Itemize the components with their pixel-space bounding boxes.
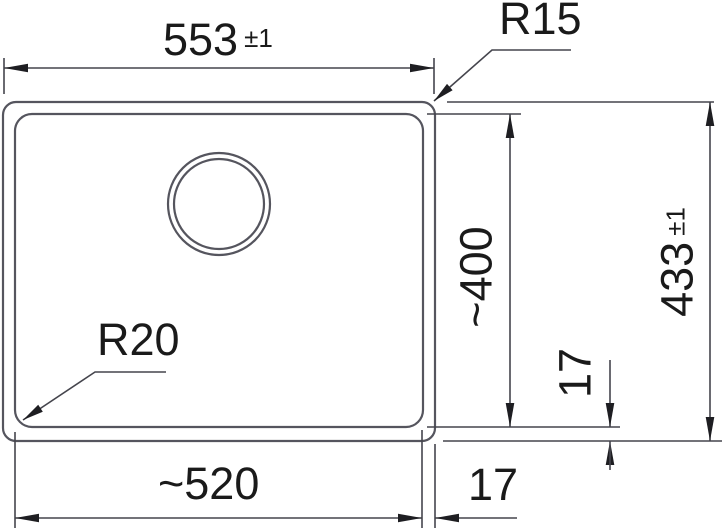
dim-label-outer-depth: 433±1 xyxy=(655,207,700,317)
outer-width-value: 553 xyxy=(163,14,238,65)
arrowhead xyxy=(23,405,43,420)
dim-label-rim-offset-vertical: 17 xyxy=(553,348,598,398)
dim-label-inner-corner-radius: R20 xyxy=(97,317,180,362)
drain-inner-circle xyxy=(174,159,264,249)
leader-r20 xyxy=(23,372,166,420)
arrowhead-down xyxy=(706,417,715,441)
drain-outer-circle xyxy=(168,153,270,255)
arrowhead-left xyxy=(435,514,459,523)
arrowhead-up xyxy=(706,102,715,126)
arrowhead-right xyxy=(398,514,422,523)
arrowhead-down xyxy=(606,403,615,427)
arrowhead-right xyxy=(410,64,434,73)
dim-label-outer-width: 553±1 xyxy=(163,17,273,62)
dim-label-rim-offset-horizontal: 17 xyxy=(468,462,518,507)
drain-circle xyxy=(168,153,270,255)
arrowhead-left xyxy=(4,64,28,73)
drawing-linework xyxy=(0,0,722,532)
sink-inner-edge xyxy=(15,114,423,427)
outer-depth-value: 433 xyxy=(652,242,703,317)
dim-rim-offset-vertical-17 xyxy=(606,360,615,470)
leader-line xyxy=(23,372,166,420)
arrowhead-left xyxy=(15,514,39,523)
outer-width-tolerance: ±1 xyxy=(244,23,273,53)
dim-label-inner-width: ~520 xyxy=(158,461,259,506)
sink-dimension-drawing: 553±1 R15 ~400 433±1 17 R20 ~520 17 xyxy=(0,0,722,532)
arrowhead-up xyxy=(506,114,515,138)
leader-r15 xyxy=(434,50,571,101)
outer-depth-tolerance: ±1 xyxy=(661,207,691,236)
dim-label-inner-depth: ~400 xyxy=(454,226,499,327)
arrowhead-down xyxy=(506,403,515,427)
dim-label-outer-corner-radius: R15 xyxy=(499,0,582,41)
leader-line xyxy=(434,50,571,101)
